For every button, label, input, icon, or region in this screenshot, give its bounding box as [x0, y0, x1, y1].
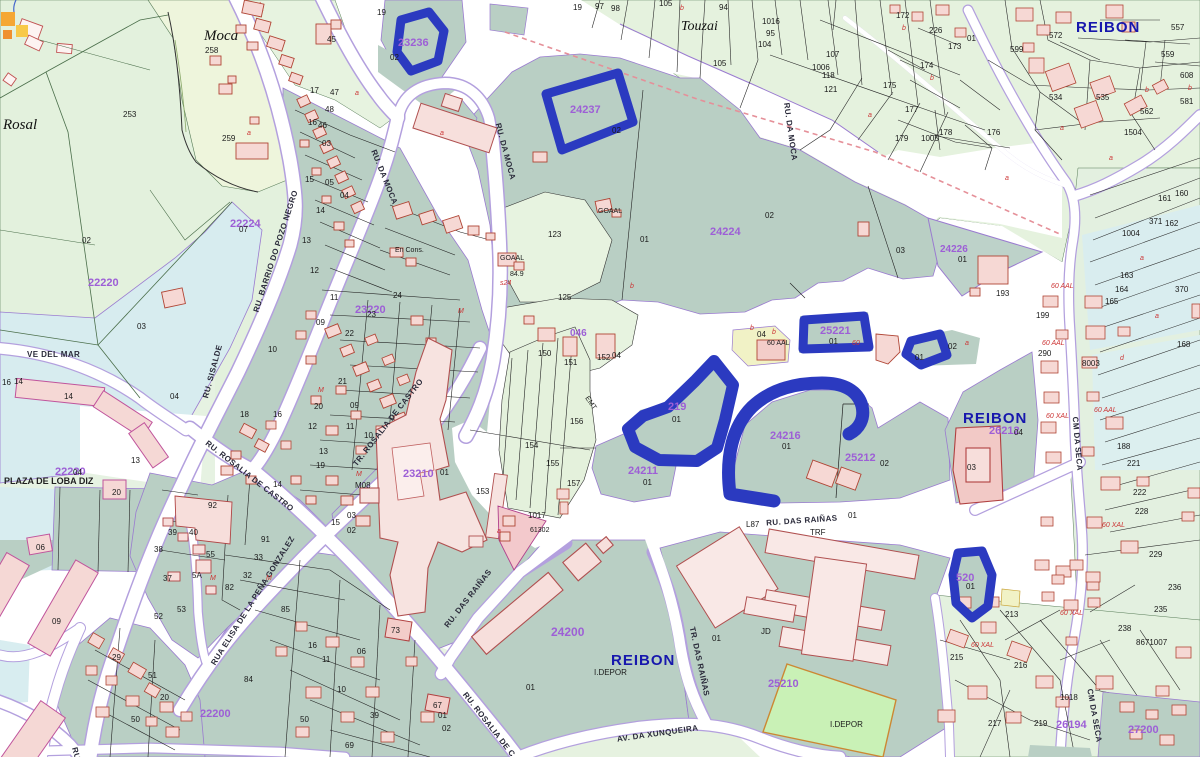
- svg-text:24211: 24211: [628, 465, 658, 477]
- svg-text:94: 94: [719, 3, 728, 12]
- svg-text:1004: 1004: [1122, 229, 1140, 238]
- svg-text:175: 175: [883, 81, 897, 90]
- svg-text:168: 168: [1177, 340, 1191, 349]
- svg-text:27200: 27200: [1128, 724, 1159, 736]
- svg-text:04: 04: [73, 468, 82, 477]
- svg-text:172: 172: [896, 11, 910, 20]
- svg-text:09: 09: [52, 617, 61, 626]
- svg-text:01: 01: [829, 337, 838, 346]
- svg-text:61302: 61302: [530, 527, 550, 534]
- svg-text:45: 45: [327, 35, 336, 44]
- svg-text:M: M: [266, 575, 272, 582]
- svg-text:18: 18: [240, 410, 249, 419]
- svg-text:60 AAL: 60 AAL: [767, 340, 790, 347]
- svg-text:69: 69: [345, 741, 354, 750]
- svg-text:02: 02: [390, 53, 399, 62]
- svg-text:188: 188: [1117, 442, 1131, 451]
- svg-text:06: 06: [36, 543, 45, 552]
- svg-text:14: 14: [14, 377, 23, 386]
- svg-text:24224: 24224: [710, 226, 741, 238]
- svg-text:157: 157: [567, 479, 581, 488]
- svg-text:Touzai: Touzai: [681, 19, 718, 34]
- svg-text:s24: s24: [500, 280, 511, 287]
- svg-text:235: 235: [1154, 605, 1168, 614]
- svg-text:a: a: [868, 112, 872, 119]
- svg-text:105: 105: [659, 0, 673, 8]
- svg-text:151: 151: [564, 358, 578, 367]
- svg-text:13: 13: [319, 447, 328, 456]
- svg-text:14: 14: [64, 392, 73, 401]
- svg-text:60 XAL: 60 XAL: [1060, 610, 1083, 617]
- svg-text:22200: 22200: [200, 708, 231, 720]
- svg-text:a: a: [440, 130, 444, 137]
- svg-text:10: 10: [364, 431, 373, 440]
- svg-text:162: 162: [1165, 219, 1179, 228]
- svg-text:I.DEPOR: I.DEPOR: [594, 668, 627, 677]
- svg-text:01: 01: [672, 415, 681, 424]
- svg-text:M: M: [318, 387, 324, 394]
- svg-text:572: 572: [1049, 31, 1063, 40]
- svg-text:04: 04: [757, 330, 766, 339]
- svg-text:51: 51: [148, 671, 157, 680]
- svg-text:b: b: [902, 25, 906, 32]
- svg-text:01: 01: [782, 442, 791, 451]
- svg-text:GOAAL: GOAAL: [500, 255, 524, 262]
- svg-text:1504: 1504: [1124, 128, 1142, 137]
- svg-text:01: 01: [640, 235, 649, 244]
- svg-text:290: 290: [1038, 349, 1052, 358]
- svg-text:216: 216: [1014, 661, 1028, 670]
- svg-text:24216: 24216: [770, 430, 801, 442]
- svg-text:02: 02: [442, 724, 451, 733]
- svg-text:50: 50: [131, 715, 140, 724]
- svg-text:608: 608: [1180, 71, 1194, 80]
- svg-text:39: 39: [168, 528, 177, 537]
- svg-text:10: 10: [268, 345, 277, 354]
- svg-text:25210: 25210: [768, 678, 799, 690]
- svg-text:a: a: [1109, 155, 1113, 162]
- svg-text:15: 15: [305, 175, 314, 184]
- svg-text:105: 105: [713, 59, 727, 68]
- svg-text:02: 02: [765, 211, 774, 220]
- svg-text:19: 19: [316, 461, 325, 470]
- svg-text:04: 04: [1014, 428, 1023, 437]
- svg-text:GOAAL: GOAAL: [598, 208, 622, 215]
- svg-text:50: 50: [300, 715, 309, 724]
- svg-text:11: 11: [346, 422, 355, 431]
- svg-text:REIBON: REIBON: [1076, 19, 1140, 36]
- svg-text:559: 559: [1161, 50, 1175, 59]
- svg-text:03: 03: [967, 463, 976, 472]
- svg-text:1005: 1005: [921, 134, 939, 143]
- svg-text:13: 13: [302, 236, 311, 245]
- svg-text:b: b: [680, 5, 684, 12]
- svg-text:60 AAL: 60 AAL: [1051, 283, 1074, 290]
- svg-text:215: 215: [950, 653, 964, 662]
- svg-text:046: 046: [570, 328, 587, 339]
- svg-text:16: 16: [308, 118, 317, 127]
- svg-text:155: 155: [546, 459, 560, 468]
- svg-text:238: 238: [1118, 624, 1132, 633]
- svg-text:98: 98: [611, 4, 620, 13]
- svg-text:173: 173: [948, 42, 962, 51]
- svg-text:03: 03: [347, 511, 356, 520]
- svg-text:22220: 22220: [88, 277, 119, 289]
- svg-text:259: 259: [222, 134, 236, 143]
- svg-text:20: 20: [112, 488, 121, 497]
- svg-text:371: 371: [1149, 217, 1163, 226]
- svg-text:I.DEPOR: I.DEPOR: [830, 720, 863, 729]
- svg-text:VE DEL MAR: VE DEL MAR: [27, 350, 80, 359]
- svg-text:55: 55: [206, 550, 215, 559]
- svg-text:40: 40: [189, 528, 198, 537]
- svg-text:20: 20: [314, 402, 323, 411]
- svg-text:09: 09: [316, 318, 325, 327]
- svg-text:174: 174: [920, 61, 934, 70]
- svg-text:179: 179: [895, 134, 909, 143]
- svg-text:16: 16: [273, 410, 282, 419]
- svg-text:03: 03: [896, 246, 905, 255]
- svg-text:46: 46: [318, 121, 327, 130]
- svg-text:226: 226: [929, 26, 943, 35]
- svg-text:M: M: [210, 575, 216, 582]
- svg-text:a: a: [247, 130, 251, 137]
- svg-text:01: 01: [966, 582, 975, 591]
- svg-text:199: 199: [1036, 311, 1050, 320]
- svg-text:M08: M08: [355, 481, 371, 490]
- svg-text:599: 599: [1010, 45, 1024, 54]
- svg-text:04: 04: [340, 191, 349, 200]
- svg-text:01: 01: [848, 511, 857, 520]
- svg-text:16: 16: [308, 641, 317, 650]
- svg-text:M: M: [356, 471, 362, 478]
- svg-text:10: 10: [337, 685, 346, 694]
- svg-text:73: 73: [391, 626, 400, 635]
- svg-text:60 XAL: 60 XAL: [1102, 522, 1125, 529]
- svg-text:91: 91: [261, 535, 270, 544]
- svg-text:557: 557: [1171, 23, 1185, 32]
- svg-text:16: 16: [2, 378, 11, 387]
- svg-text:04: 04: [170, 392, 179, 401]
- svg-text:19: 19: [573, 3, 582, 12]
- svg-text:01: 01: [712, 634, 721, 643]
- svg-text:123: 123: [548, 230, 562, 239]
- svg-text:11: 11: [330, 293, 339, 302]
- svg-text:121: 121: [824, 85, 838, 94]
- svg-text:12: 12: [310, 266, 319, 275]
- svg-text:En Cons.: En Cons.: [395, 247, 424, 254]
- svg-text:221: 221: [1127, 459, 1141, 468]
- svg-text:60 XAL: 60 XAL: [1046, 413, 1069, 420]
- svg-text:48: 48: [325, 105, 334, 114]
- svg-text:17: 17: [310, 86, 319, 95]
- svg-text:219: 219: [1034, 719, 1048, 728]
- svg-text:01: 01: [438, 711, 447, 720]
- svg-text:14: 14: [273, 480, 282, 489]
- svg-text:26194: 26194: [1056, 719, 1087, 731]
- svg-text:02: 02: [82, 236, 91, 245]
- svg-text:12: 12: [308, 422, 317, 431]
- svg-text:24: 24: [393, 291, 402, 300]
- svg-text:219: 219: [668, 401, 686, 413]
- svg-text:07: 07: [239, 225, 248, 234]
- svg-text:TRF: TRF: [810, 528, 826, 537]
- svg-text:178: 178: [939, 128, 953, 137]
- svg-text:38: 38: [154, 545, 163, 554]
- svg-text:24200: 24200: [551, 625, 585, 639]
- svg-text:b: b: [630, 283, 634, 290]
- svg-text:253: 253: [123, 110, 137, 119]
- svg-text:05: 05: [325, 178, 334, 187]
- svg-text:164: 164: [1115, 285, 1129, 294]
- svg-text:b: b: [1145, 87, 1149, 94]
- svg-text:20: 20: [160, 693, 169, 702]
- svg-text:535: 535: [1096, 93, 1110, 102]
- svg-text:60 XAL: 60 XAL: [971, 642, 994, 649]
- svg-text:84: 84: [244, 675, 253, 684]
- svg-text:24237: 24237: [570, 104, 601, 116]
- svg-text:a: a: [1140, 255, 1144, 262]
- svg-text:a: a: [497, 528, 501, 535]
- svg-text:23210: 23210: [403, 468, 434, 480]
- svg-text:02: 02: [948, 342, 957, 351]
- svg-text:37: 37: [163, 574, 172, 583]
- svg-text:1018: 1018: [1060, 693, 1078, 702]
- svg-text:02: 02: [347, 526, 356, 535]
- svg-text:14: 14: [316, 206, 325, 215]
- svg-text:1016: 1016: [762, 17, 780, 26]
- svg-text:217: 217: [988, 719, 1002, 728]
- svg-text:84.9: 84.9: [510, 271, 524, 278]
- svg-text:228: 228: [1135, 507, 1149, 516]
- svg-text:24226: 24226: [940, 244, 968, 255]
- svg-text:82: 82: [225, 583, 234, 592]
- svg-text:b: b: [750, 325, 754, 332]
- svg-text:a: a: [1005, 175, 1009, 182]
- svg-text:09: 09: [350, 401, 359, 410]
- svg-text:11: 11: [322, 655, 331, 664]
- svg-text:REIBON: REIBON: [611, 652, 675, 669]
- svg-text:01: 01: [526, 683, 535, 692]
- svg-text:222: 222: [1133, 488, 1147, 497]
- svg-text:60 AAL: 60 AAL: [1094, 407, 1117, 414]
- svg-text:29: 29: [112, 653, 121, 662]
- svg-text:581: 581: [1180, 97, 1194, 106]
- svg-text:95: 95: [766, 29, 775, 38]
- svg-text:JD: JD: [761, 627, 771, 636]
- svg-text:23: 23: [367, 310, 376, 319]
- svg-text:562: 562: [1140, 107, 1154, 116]
- svg-text:60 AAL: 60 AAL: [1042, 340, 1065, 347]
- svg-text:176: 176: [987, 128, 1001, 137]
- svg-text:67: 67: [433, 701, 442, 710]
- svg-text:161: 161: [1158, 194, 1172, 203]
- svg-text:1017: 1017: [528, 511, 546, 520]
- svg-text:60: 60: [852, 340, 860, 347]
- svg-text:213: 213: [1005, 610, 1019, 619]
- svg-text:52: 52: [154, 612, 163, 621]
- svg-text:165: 165: [1105, 297, 1119, 306]
- svg-text:25221: 25221: [820, 325, 851, 337]
- svg-text:a: a: [965, 340, 969, 347]
- svg-text:03: 03: [322, 139, 331, 148]
- svg-text:193: 193: [996, 289, 1010, 298]
- svg-text:156: 156: [570, 417, 584, 426]
- svg-text:32: 32: [243, 571, 252, 580]
- svg-text:25212: 25212: [845, 452, 876, 464]
- svg-text:13: 13: [131, 456, 140, 465]
- svg-text:Moca: Moca: [203, 28, 238, 44]
- svg-text:Rosal: Rosal: [2, 117, 37, 133]
- svg-text:153: 153: [476, 487, 490, 496]
- svg-text:b: b: [1188, 85, 1192, 92]
- svg-text:258: 258: [205, 46, 219, 55]
- svg-text:104: 104: [758, 40, 772, 49]
- svg-text:125: 125: [558, 293, 572, 302]
- svg-text:534: 534: [1049, 93, 1063, 102]
- svg-text:370: 370: [1175, 285, 1189, 294]
- svg-text:97: 97: [595, 2, 604, 11]
- svg-text:01: 01: [958, 255, 967, 264]
- svg-text:5A: 5A: [192, 571, 202, 580]
- svg-text:22: 22: [345, 329, 354, 338]
- svg-text:04: 04: [612, 351, 621, 360]
- svg-text:154: 154: [525, 441, 539, 450]
- svg-text:163: 163: [1120, 271, 1134, 280]
- svg-text:152: 152: [597, 353, 611, 362]
- svg-text:a: a: [1060, 125, 1064, 132]
- svg-text:47: 47: [330, 88, 339, 97]
- svg-text:21: 21: [338, 377, 347, 386]
- svg-text:M: M: [458, 308, 464, 315]
- svg-text:L87: L87: [746, 520, 760, 529]
- svg-text:01: 01: [440, 468, 449, 477]
- svg-text:150: 150: [538, 349, 552, 358]
- svg-text:107: 107: [826, 50, 840, 59]
- svg-text:a: a: [1155, 313, 1159, 320]
- svg-text:15: 15: [331, 518, 340, 527]
- svg-text:53: 53: [177, 605, 186, 614]
- svg-text:03: 03: [137, 322, 146, 331]
- svg-text:06: 06: [357, 647, 366, 656]
- svg-text:33: 33: [254, 553, 263, 562]
- svg-text:23236: 23236: [398, 37, 429, 49]
- svg-text:8003: 8003: [1082, 359, 1100, 368]
- svg-text:177: 177: [905, 105, 919, 114]
- svg-text:92: 92: [208, 501, 217, 510]
- svg-text:a: a: [355, 90, 359, 97]
- svg-text:8671007: 8671007: [1136, 638, 1168, 647]
- svg-text:b: b: [930, 75, 934, 82]
- svg-text:02: 02: [612, 126, 621, 135]
- svg-text:85: 85: [281, 605, 290, 614]
- svg-text:02: 02: [880, 459, 889, 468]
- svg-text:b: b: [772, 329, 776, 336]
- svg-text:118: 118: [822, 71, 835, 80]
- svg-text:01: 01: [915, 353, 924, 362]
- svg-text:01: 01: [967, 34, 976, 43]
- svg-text:39: 39: [370, 711, 379, 720]
- svg-text:160: 160: [1175, 189, 1189, 198]
- svg-text:19: 19: [377, 8, 386, 17]
- svg-text:01: 01: [643, 478, 652, 487]
- svg-text:229: 229: [1149, 550, 1163, 559]
- svg-text:236: 236: [1168, 583, 1182, 592]
